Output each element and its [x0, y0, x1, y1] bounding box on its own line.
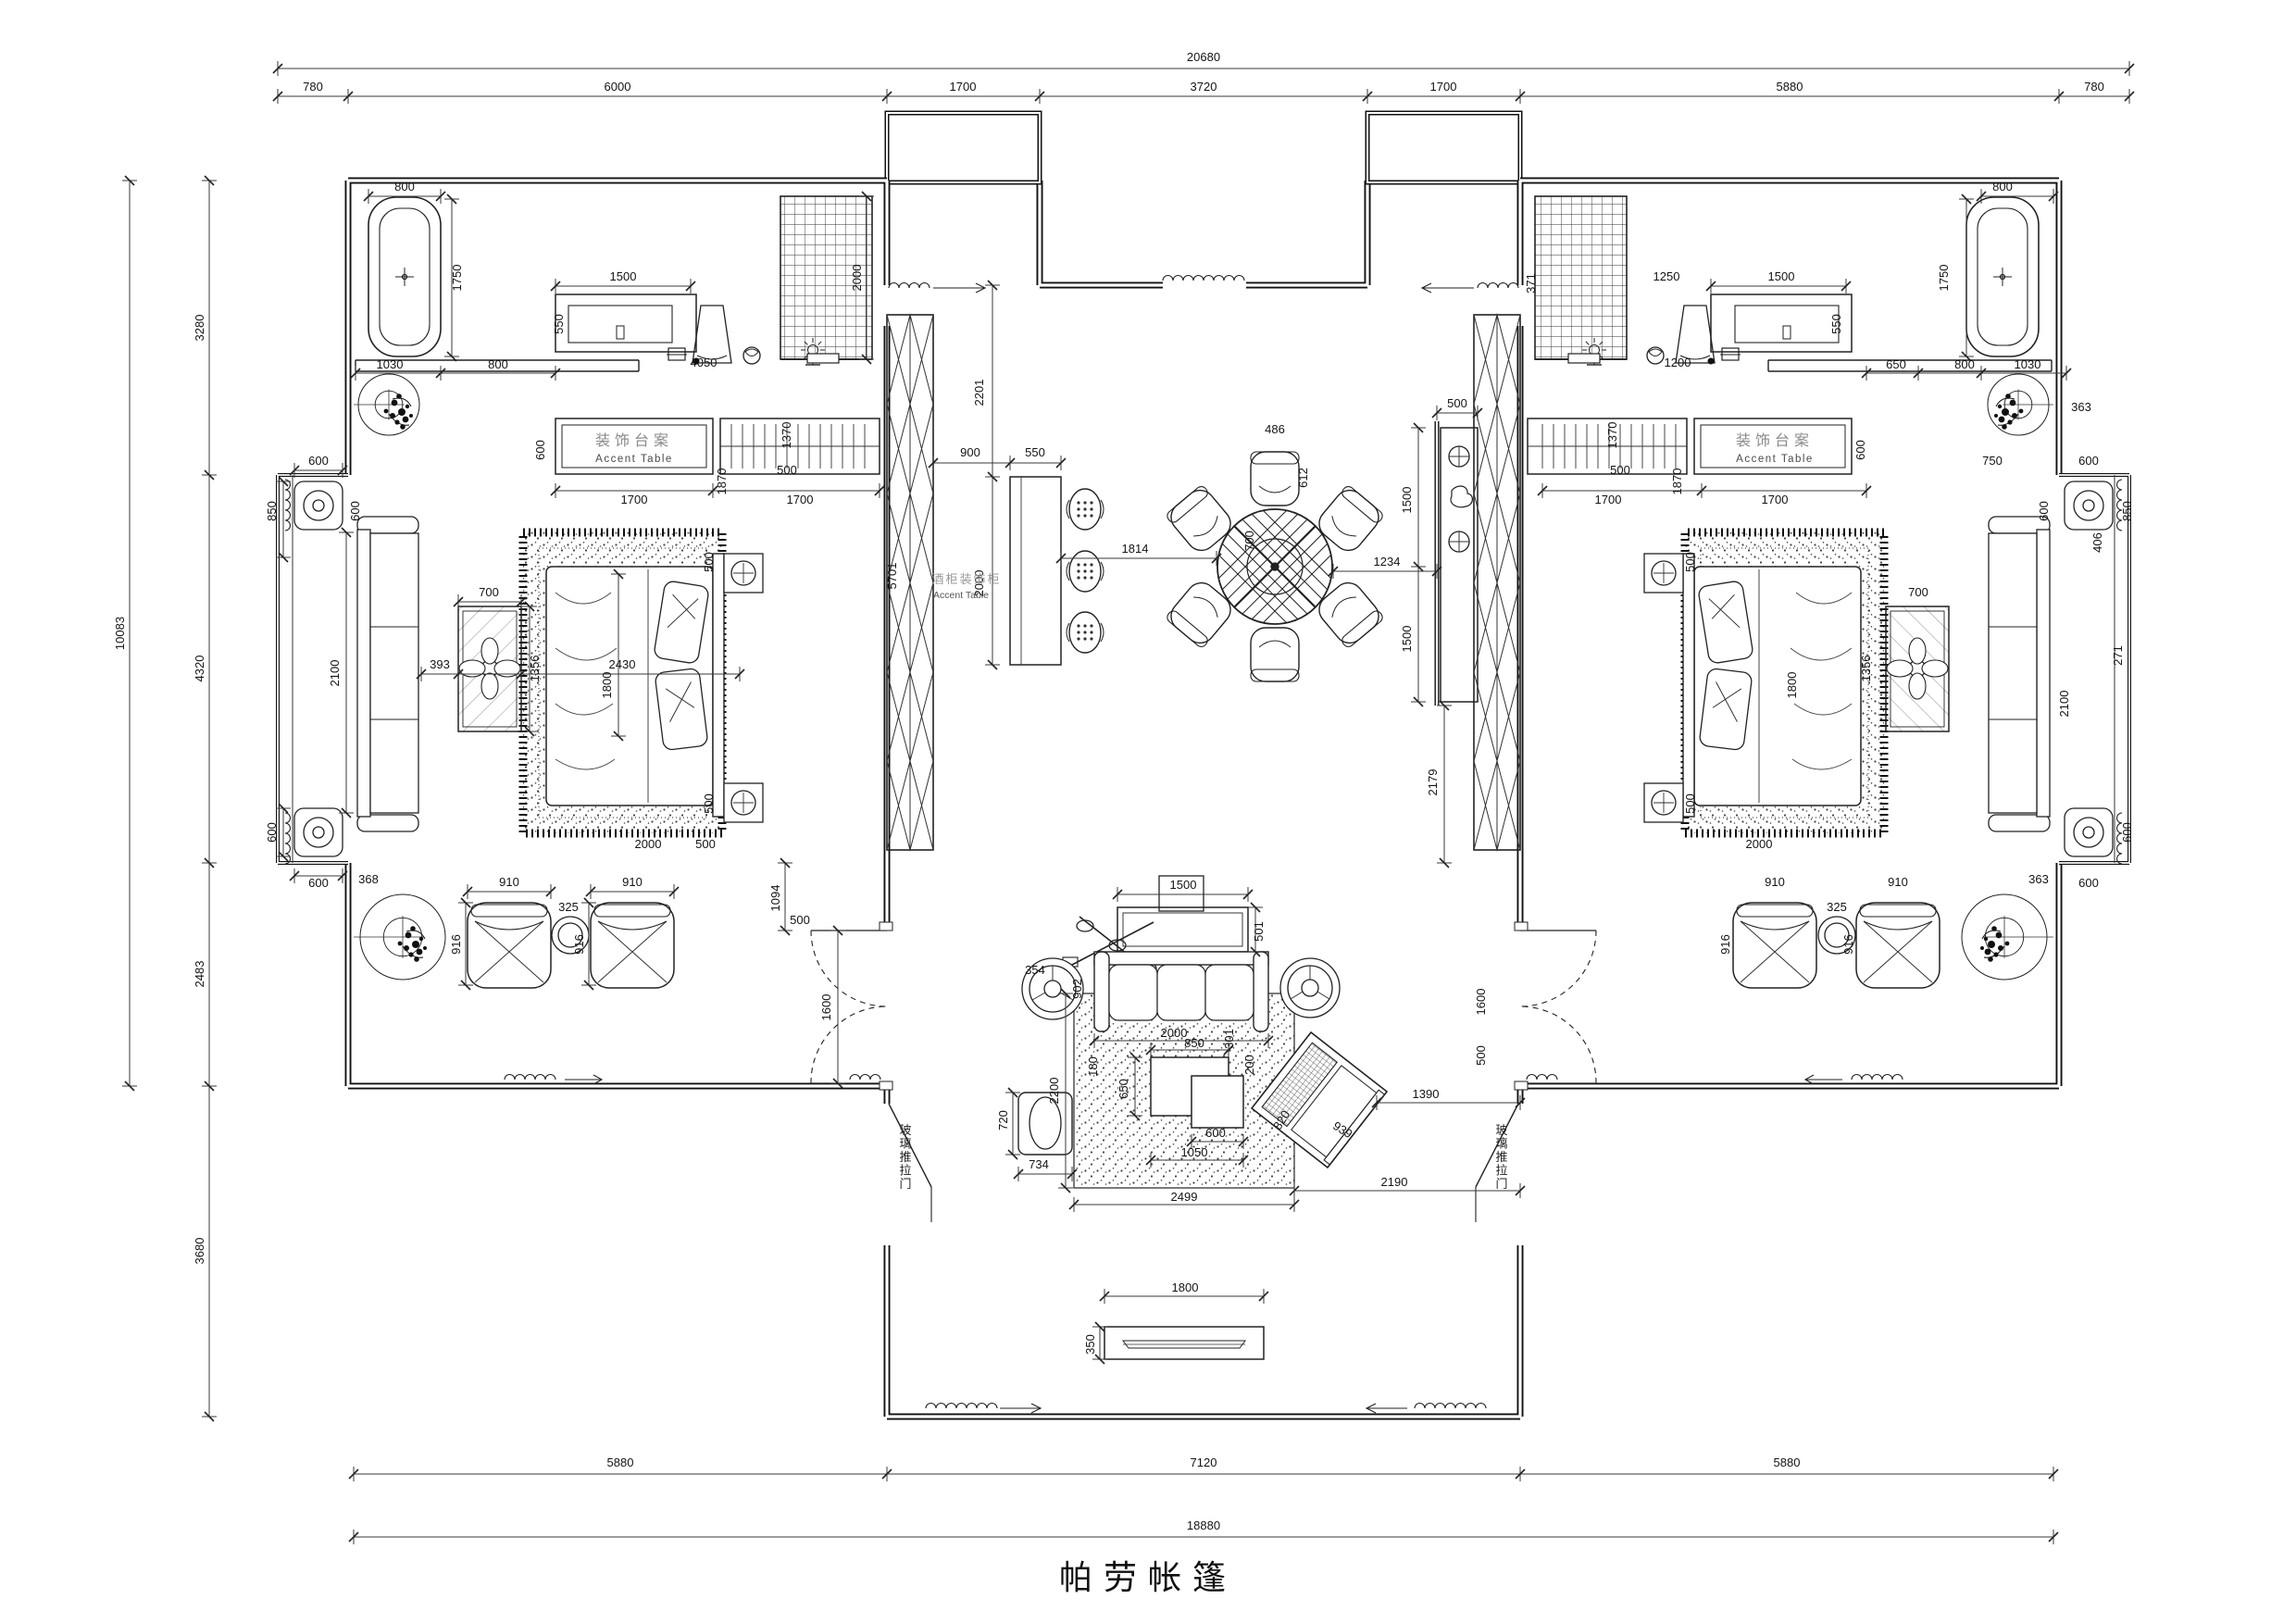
center-area: [1010, 421, 1478, 706]
dim-label: 500: [702, 793, 716, 814]
dim-label: 600: [308, 454, 329, 468]
dim-label: 500: [790, 913, 810, 927]
walls: [887, 113, 1520, 1417]
drawing-title: 帕劳帐篷: [1059, 1558, 1237, 1596]
text-label: 装饰台案: [595, 432, 673, 449]
dim-label: 2100: [328, 660, 342, 687]
dim-label: 1700: [1762, 493, 1789, 506]
dim-label: 550: [1025, 445, 1045, 459]
dim-label: 20680: [1187, 50, 1220, 64]
right-wing: [1422, 181, 2129, 1090]
dim-label: 600: [2120, 822, 2134, 843]
dim-label: 500: [695, 837, 716, 851]
dim-label: 371: [1524, 273, 1538, 294]
dim-label: 354: [1025, 963, 1045, 977]
dim-label: 5880: [1774, 1455, 1801, 1469]
dim-label: 3680: [193, 1238, 206, 1265]
dim-label: 406: [2090, 532, 2104, 553]
floor-plan-drawing: 2068078060001700372017005880780100833280…: [0, 0, 2296, 1624]
dim-label: 1250: [1653, 269, 1680, 283]
dim-label: 6000: [605, 80, 631, 94]
dim-label: 1700: [1430, 80, 1457, 94]
dim-label: 2190: [1381, 1175, 1408, 1189]
dim-label: 325: [558, 900, 579, 914]
dim-label: 800: [1992, 180, 2013, 194]
floor-plan-sheet: 2068078060001700372017005880780100833280…: [0, 0, 2296, 1624]
dim-label: 1700: [621, 493, 648, 506]
dim-label: 3720: [1191, 80, 1217, 94]
text-label: 玻璃推拉门: [899, 1123, 911, 1191]
dim-label: 2000: [1161, 1026, 1188, 1040]
dim-label: 750: [1982, 454, 2003, 468]
dim-label: 600: [348, 501, 362, 521]
dim-label: 1700: [950, 80, 977, 94]
dim-label: 1750: [450, 265, 464, 292]
dim-label: 2483: [193, 961, 206, 988]
dim-label: 1030: [377, 357, 404, 371]
dim-label: 850: [2120, 501, 2134, 521]
dim-label: 1814: [1122, 542, 1149, 556]
living-terrace: [1018, 876, 1387, 1359]
dim-label: 10083: [113, 617, 127, 650]
dim-label: 1094: [768, 885, 782, 912]
dim-label: 4320: [193, 656, 206, 682]
dim-label: 916: [449, 934, 463, 955]
dim-label: 1500: [1768, 269, 1795, 283]
dim-label: 1370: [1605, 422, 1619, 449]
dim-label: 1800: [1785, 672, 1799, 699]
dim-label: 650: [1886, 357, 1906, 371]
dim-label: 500: [1447, 396, 1467, 410]
dim-label: 800: [1954, 357, 1975, 371]
dim-label: 500: [1610, 463, 1630, 477]
dim-label: 650: [1117, 1079, 1130, 1099]
text-label: 酒柜装饰柜: [931, 572, 1001, 586]
text-label: Accent Table: [1736, 454, 1814, 465]
dim-label: 1750: [1937, 265, 1951, 292]
dim-label: 600: [308, 876, 329, 890]
dim-label: 500: [777, 463, 797, 477]
dim-label: 2000: [635, 837, 662, 851]
dim-label: 1870: [1670, 468, 1684, 495]
dim-label: 600: [533, 440, 547, 460]
dim-label: 1500: [1170, 878, 1197, 892]
dim-label: 916: [1718, 934, 1732, 955]
dim-label: 700: [479, 585, 499, 599]
dim-label: 780: [2084, 80, 2104, 94]
dim-label: 612: [1296, 468, 1310, 488]
dim-label: 910: [499, 875, 519, 889]
dim-label: 2000: [1746, 837, 1773, 851]
dim-label: 1390: [1413, 1087, 1440, 1101]
dim-label: 600: [1205, 1126, 1226, 1140]
dim-label: 7120: [1191, 1455, 1217, 1469]
dim-label: 5701: [885, 563, 899, 590]
dim-label: 5880: [1777, 80, 1803, 94]
dim-label: 1700: [1595, 493, 1622, 506]
dim-label: 800: [394, 180, 415, 194]
dim-label: 1234: [1374, 555, 1401, 568]
dim-label: 1600: [1474, 989, 1488, 1016]
dim-label: 500: [1683, 793, 1697, 814]
dim-label: 301: [1222, 1029, 1236, 1049]
dim-label: 1870: [715, 468, 729, 495]
dim-label: 2179: [1426, 769, 1440, 796]
dim-label: 368: [358, 872, 379, 886]
dim-label: 393: [430, 657, 450, 671]
dim-label: 1030: [2015, 357, 2041, 371]
dim-label: 916: [1841, 934, 1855, 955]
dim-label: 1500: [1400, 626, 1414, 653]
dim-label: 700: [1908, 585, 1928, 599]
dim-label: 363: [2028, 872, 2049, 886]
dim-label: 2499: [1171, 1190, 1198, 1204]
dim-label: 3280: [193, 315, 206, 342]
dim-label: 900: [960, 445, 980, 459]
dim-label: 2430: [609, 657, 636, 671]
text-label: 装饰台案: [1736, 432, 1814, 449]
dim-label: 600: [265, 822, 279, 843]
dim-label: 180: [1086, 1056, 1100, 1077]
dim-label: 500: [702, 552, 716, 572]
dim-label: 780: [303, 80, 323, 94]
dim-label: 1800: [600, 672, 614, 699]
dim-label: 720: [996, 1110, 1010, 1131]
dim-label: 363: [2071, 400, 2091, 414]
dim-label: 600: [2037, 501, 2051, 521]
dim-label: 271: [2111, 645, 2125, 666]
dim-label: 916: [572, 934, 586, 955]
dim-label: 700: [1242, 531, 1256, 551]
dim-label: 910: [1888, 875, 1908, 889]
dim-label: 486: [1265, 422, 1285, 436]
dim-label: 600: [2078, 876, 2099, 890]
dim-label: 850: [1184, 1036, 1204, 1050]
dim-label: 5880: [607, 1455, 634, 1469]
dim-label: 550: [552, 314, 566, 334]
dim-label: 1500: [1400, 487, 1414, 514]
dim-label: 18880: [1187, 1518, 1220, 1532]
dim-label: 600: [1853, 440, 1867, 460]
text-label: Accent Table: [595, 454, 673, 465]
dim-label: 910: [622, 875, 643, 889]
dim-label: 550: [1829, 314, 1843, 334]
dim-label: 1050: [1181, 1145, 1208, 1159]
dim-label: 4050: [691, 356, 717, 369]
dim-label: 350: [1083, 1334, 1097, 1355]
dim-label: 325: [1827, 900, 1847, 914]
dim-label: 1200: [1665, 356, 1691, 369]
dim-label: 800: [488, 357, 508, 371]
dim-label: 902: [1070, 979, 1084, 999]
dim-label: 501: [1252, 921, 1266, 942]
dim-label: 2200: [1047, 1078, 1061, 1105]
dim-label: 1600: [819, 994, 833, 1021]
dim-label: 1370: [780, 422, 793, 449]
dim-label: 2000: [850, 265, 864, 292]
dim-label: 1500: [610, 269, 637, 283]
dim-label: 600: [2078, 454, 2099, 468]
dim-label: 850: [265, 501, 279, 521]
dim-label: 200: [1242, 1055, 1256, 1075]
left-wing: [278, 181, 985, 1090]
dim-label: 2100: [2057, 691, 2071, 718]
text-label: 玻璃推拉门: [1495, 1123, 1507, 1191]
dim-label: 1700: [787, 493, 814, 506]
dim-label: 500: [1683, 552, 1697, 572]
dim-label: 1800: [1172, 1280, 1199, 1294]
dim-label: 1356: [1859, 656, 1873, 682]
dim-label: 734: [1029, 1157, 1049, 1171]
dim-label: 910: [1765, 875, 1785, 889]
dim-label: 500: [1474, 1045, 1488, 1066]
text-label: Accent Table: [933, 590, 989, 601]
dim-label: 1356: [528, 656, 542, 682]
dim-label: 2201: [972, 380, 986, 406]
